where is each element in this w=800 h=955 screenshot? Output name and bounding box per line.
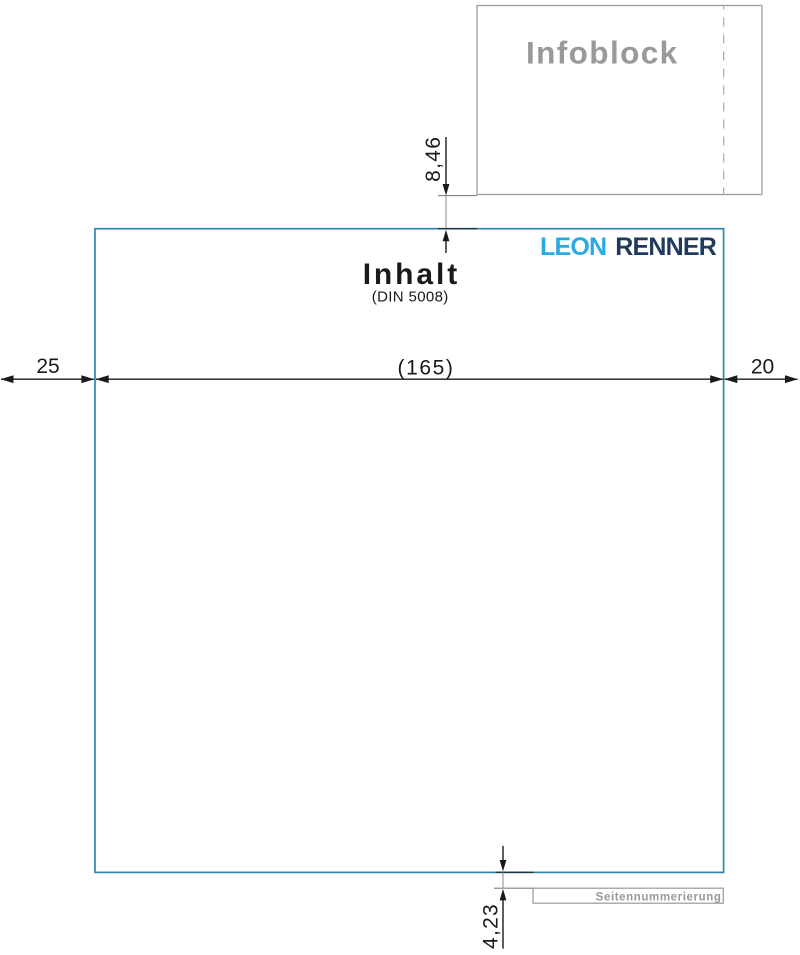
svg-text:LEON: LEON (540, 233, 606, 261)
svg-text:Infoblock: Infoblock (526, 35, 679, 71)
svg-text:Inhalt: Inhalt (363, 258, 460, 291)
svg-text:20: 20 (751, 356, 774, 379)
svg-text:RENNER: RENNER (615, 233, 717, 261)
svg-text:(DIN 5008): (DIN 5008) (372, 289, 449, 306)
svg-text:(165): (165) (397, 357, 454, 380)
svg-text:4,23: 4,23 (480, 903, 503, 949)
svg-text:Seitennummerierung: Seitennummerierung (596, 891, 722, 903)
svg-text:25: 25 (36, 355, 59, 378)
svg-text:8,46: 8,46 (422, 136, 445, 182)
